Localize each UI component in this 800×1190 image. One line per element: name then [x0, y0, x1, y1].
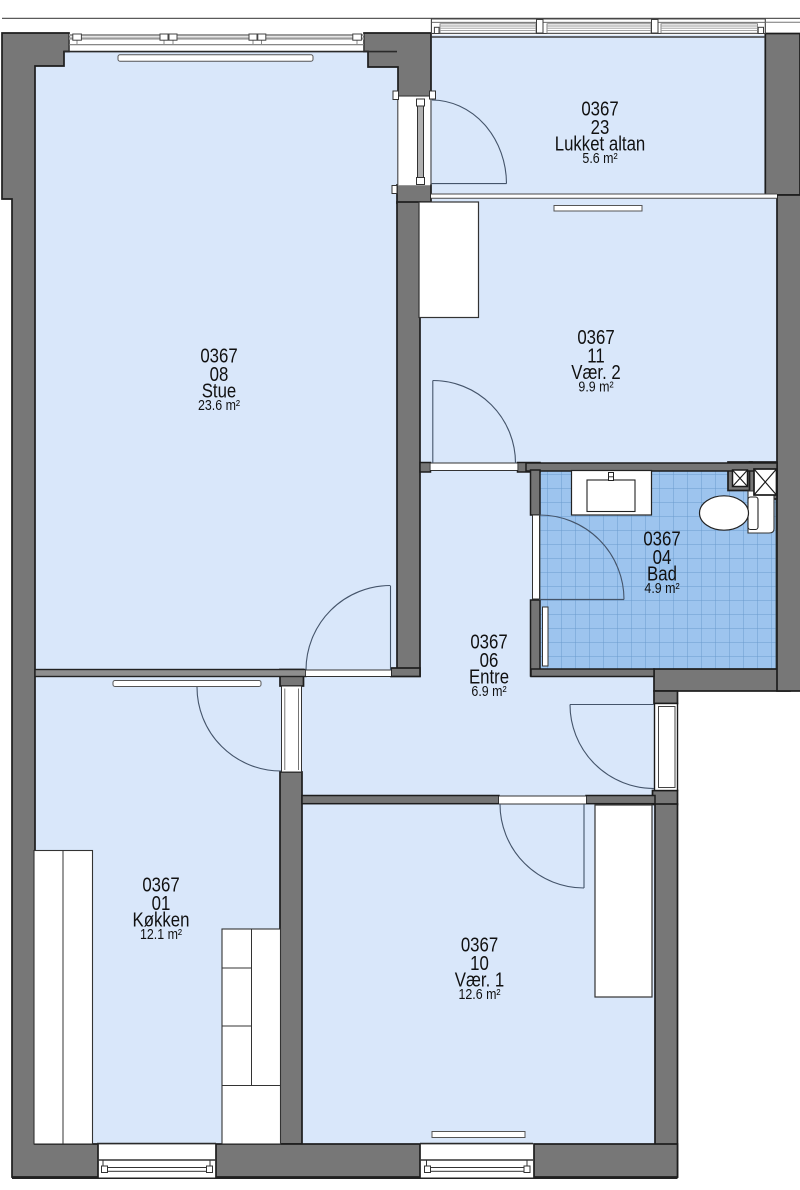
svg-text:12.6 m²: 12.6 m² [458, 986, 501, 1002]
svg-text:12.1 m²: 12.1 m² [140, 926, 183, 942]
svg-text:23.6 m²: 23.6 m² [198, 397, 241, 413]
svg-text:4.9 m²: 4.9 m² [644, 580, 680, 596]
svg-text:9.9 m²: 9.9 m² [578, 379, 614, 395]
svg-text:5.6 m²: 5.6 m² [582, 150, 618, 166]
svg-text:6.9 m²: 6.9 m² [471, 683, 507, 699]
